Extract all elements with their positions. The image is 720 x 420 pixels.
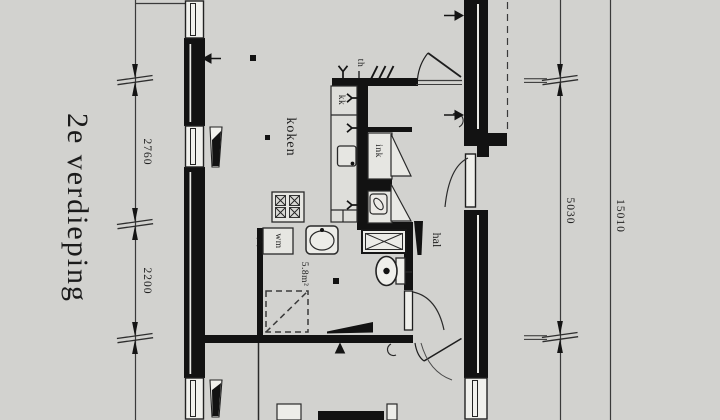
hal-wedge [414,221,423,255]
door-threshold-lines [416,81,462,85]
fixture-label-washing-machine: wm [272,233,282,248]
fixture-label-fridge: kk [335,95,345,106]
dimension-line-left [136,0,189,420]
closet-door-leaf [391,134,411,221]
fixture-label-flue: th [354,59,364,67]
dimension-label-5030: 5030 [563,198,575,225]
room-label-hall: hal [431,233,443,248]
dimension-label-2760: 2760 [140,139,152,166]
floor-title: 2e verdieping [62,113,92,303]
closet-boiler [368,191,392,223]
floor-plan: 2e verdieping 2760 2200 5030 15010 koken… [0,0,720,420]
room-label-kitchen: koken [283,117,297,156]
hob-unit [338,146,357,166]
room-label-area: 5.8m² [298,262,308,287]
washbasin [306,226,338,254]
lower-floor-cutoff [259,343,398,420]
dimension-label-15010: 15010 [613,199,625,233]
dimension-label-2200: 2200 [140,268,152,295]
door-top [418,53,462,79]
shower-tray-alt-dashed [266,291,308,332]
exterior-wall-left [184,38,205,378]
shower [362,230,406,253]
floor-slope-wedge [327,322,373,334]
stair-hatch-marks [359,66,394,80]
door-bottom [387,339,461,381]
door-bathroom [405,291,445,330]
fixture-label-closet: ink [372,144,382,158]
shutter-wedge [210,127,222,417]
stove [272,192,304,222]
